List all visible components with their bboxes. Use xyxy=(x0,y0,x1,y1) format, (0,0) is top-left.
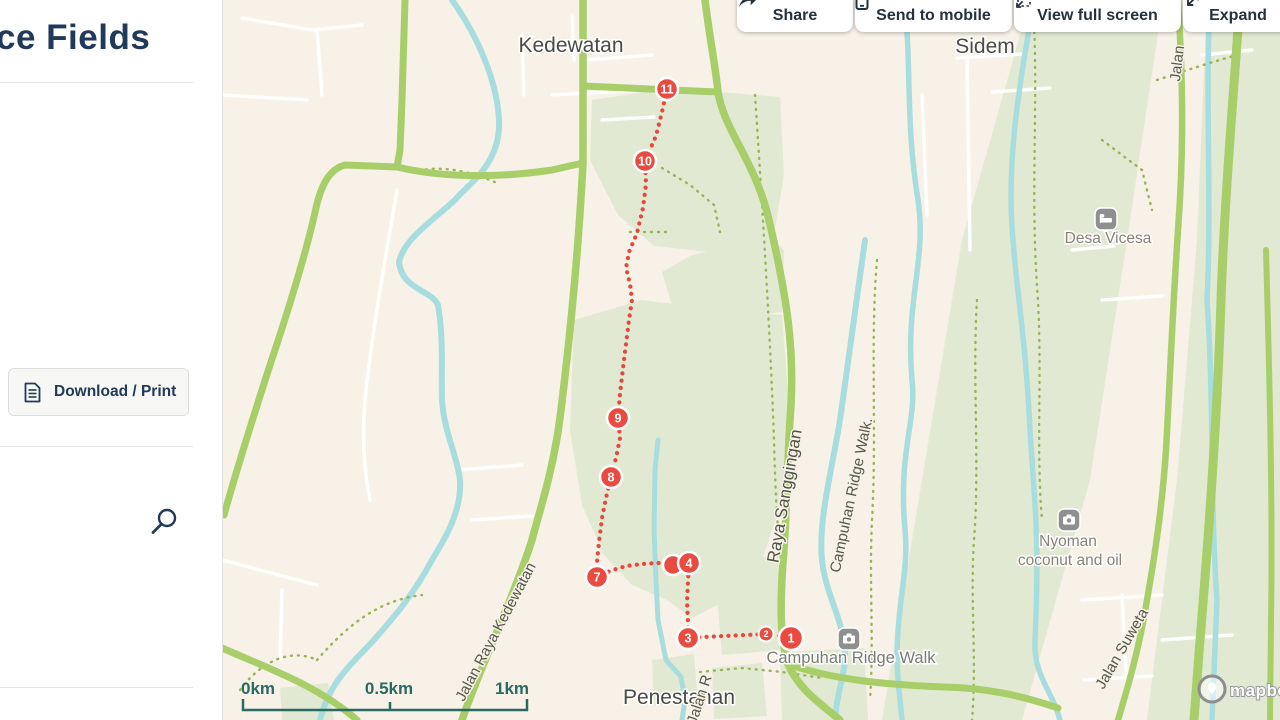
fullscreen-icon xyxy=(1014,0,1034,10)
search-button[interactable] xyxy=(147,505,181,539)
expand-icon xyxy=(1183,0,1203,10)
poi-label-nyoman-2: coconut and oil xyxy=(1018,552,1122,569)
document-icon xyxy=(24,382,41,403)
download-print-label: Download / Print xyxy=(54,383,176,401)
waypoint-number: 9 xyxy=(615,412,622,426)
scale-label-0km: 0km xyxy=(241,679,275,698)
waypoint-number: 7 xyxy=(594,571,601,585)
waypoint-marker[interactable]: 1 xyxy=(779,626,803,650)
view-full-screen-button[interactable]: View full screen xyxy=(1014,0,1181,32)
svg-text:mapbox: mapbox xyxy=(1230,681,1280,700)
send-to-mobile-button[interactable]: Send to mobile xyxy=(855,0,1012,32)
place-label-kedewatan: Kedewatan xyxy=(518,34,623,57)
waypoint-number: 2 xyxy=(763,629,768,639)
waypoint-marker[interactable]: 9 xyxy=(607,407,629,429)
waypoint-marker[interactable]: 4 xyxy=(678,552,700,574)
search-icon xyxy=(147,505,181,539)
divider xyxy=(0,82,193,83)
poi-label-campuhan: Campuhan Ridge Walk xyxy=(766,649,936,667)
scale-label-half-km: 0.5km xyxy=(365,679,413,698)
waypoint-marker[interactable]: 7 xyxy=(586,566,608,588)
share-button[interactable]: Share xyxy=(737,0,853,32)
sidebar: ce Fields Download / Print xyxy=(0,0,223,720)
waypoint-number: 4 xyxy=(686,557,693,571)
lodging-icon xyxy=(1095,208,1117,230)
phone-icon xyxy=(855,0,869,10)
place-label-penestanan: Penestanan xyxy=(623,686,735,709)
poi-label-nyoman-1: Nyoman xyxy=(1039,533,1097,550)
download-print-button[interactable]: Download / Print xyxy=(8,368,189,416)
waypoint-number: 10 xyxy=(638,155,652,169)
divider xyxy=(0,446,193,447)
poi-label-desa-vicesa: Desa Vicesa xyxy=(1065,230,1152,247)
expand-button[interactable]: Expand xyxy=(1183,0,1280,32)
waypoint-marker[interactable]: 11 xyxy=(656,78,678,100)
waypoint-number: 8 xyxy=(608,471,615,485)
scale-label-1km: 1km xyxy=(495,679,529,698)
map-canvas[interactable]: Kedewatan Sidem Penestanan Desa Vicesa N… xyxy=(222,0,1280,720)
divider xyxy=(0,687,193,688)
waypoint-marker[interactable]: 3 xyxy=(677,627,699,649)
place-label-sidem: Sidem xyxy=(955,35,1015,58)
camera-icon xyxy=(1058,509,1080,531)
waypoint-number: 1 xyxy=(788,632,795,646)
road-label-jalan: Jalan xyxy=(1167,45,1188,83)
page: Kedewatan Sidem Penestanan Desa Vicesa N… xyxy=(0,0,1280,720)
page-title: ce Fields xyxy=(0,18,150,58)
waypoint-number: 11 xyxy=(660,83,673,97)
waypoint-marker[interactable]: 8 xyxy=(600,466,622,488)
camera-icon xyxy=(838,628,860,650)
waypoint-marker[interactable]: 2 xyxy=(759,627,774,642)
waypoint-number: 3 xyxy=(685,632,692,646)
share-icon xyxy=(737,0,759,8)
waypoint-marker[interactable]: 10 xyxy=(634,150,656,172)
